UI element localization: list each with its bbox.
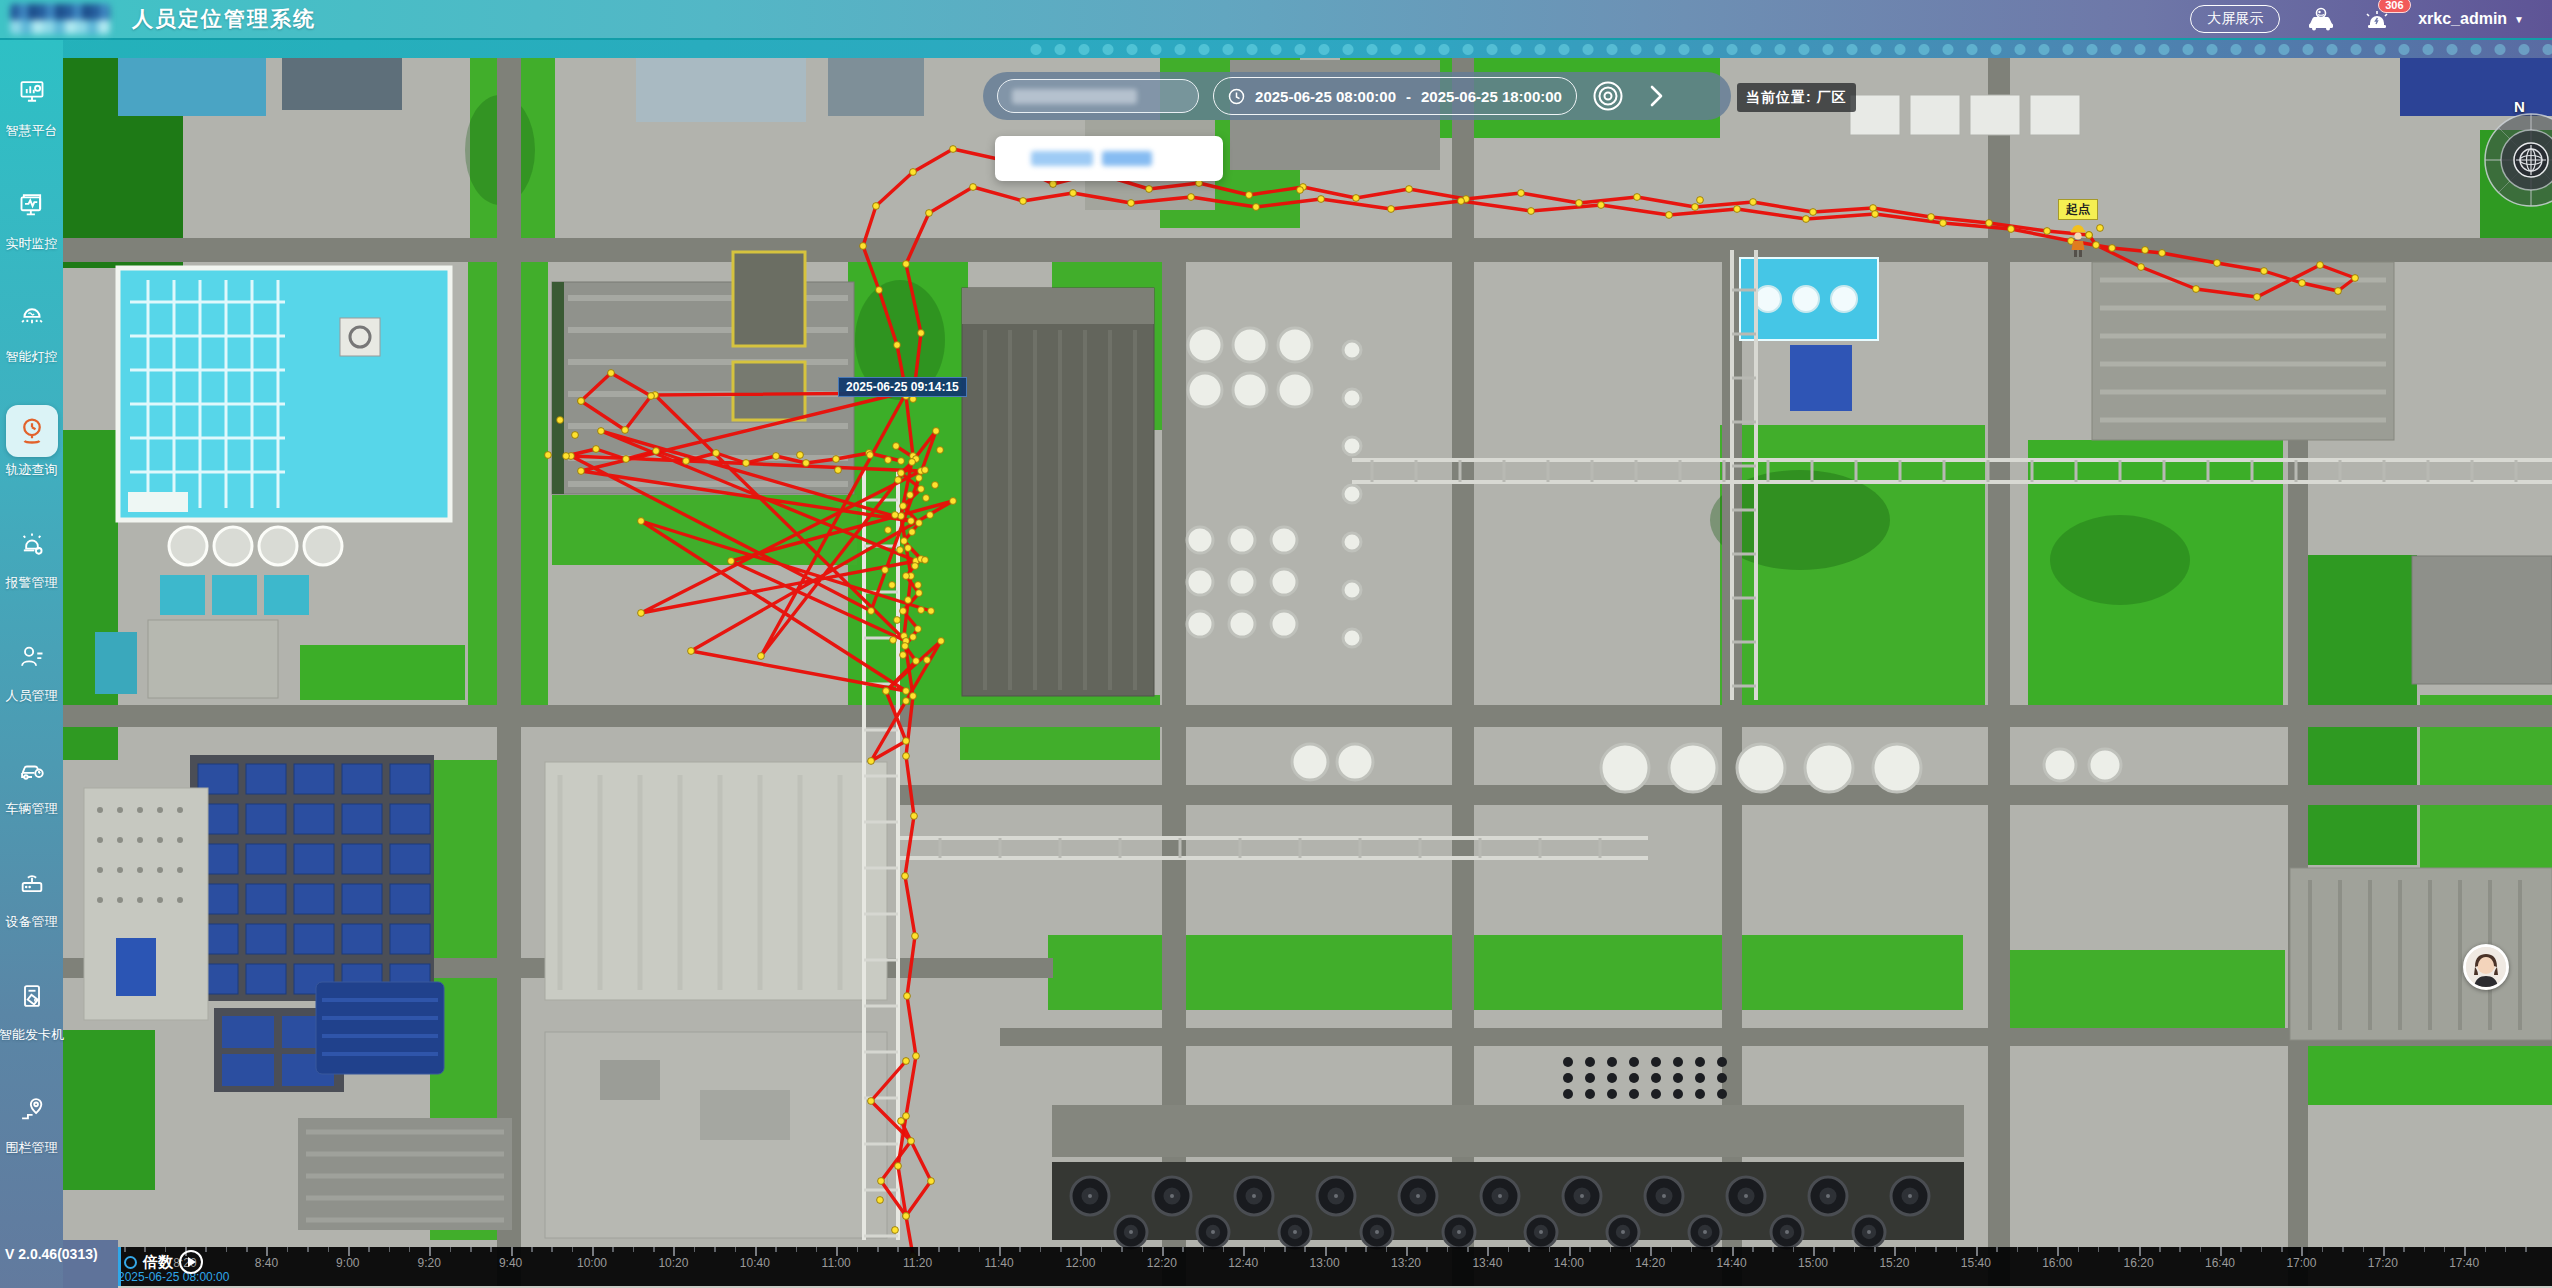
header-accent-strip [0, 40, 2552, 58]
sidebar-item-label: 围栏管理 [6, 1139, 58, 1157]
card-dispenser-icon [6, 970, 58, 1022]
timeline-major-tick [836, 1247, 838, 1256]
timeline-minor-tick [1996, 1247, 1998, 1252]
sidebar-item-label: 智能发卡机 [0, 1026, 64, 1044]
timeline-major-tick [1325, 1247, 1327, 1256]
fence-icon [6, 1083, 58, 1135]
timeline-minor-tick [897, 1247, 899, 1252]
realtime-monitor-icon [6, 179, 58, 231]
speed-label[interactable]: 倍数 [143, 1253, 173, 1272]
timeline-tick-label: 12:40 [1228, 1256, 1258, 1270]
timeline-minor-tick [2118, 1247, 2120, 1252]
track-query-icon [6, 405, 58, 457]
timeline-minor-tick [714, 1247, 716, 1252]
timeline-major-tick [999, 1247, 1001, 1256]
timeline-tick-label: 10:40 [740, 1256, 770, 1270]
timeline-major-tick [1813, 1247, 1815, 1256]
timeline-major-tick [2464, 1247, 2466, 1256]
redacted-suggestion-text [1031, 151, 1093, 166]
notification-icon[interactable]: 306 [2362, 6, 2392, 32]
timeline-minor-tick [1671, 1247, 1673, 1252]
factory-map[interactable] [63, 58, 2552, 1288]
target-icon [1592, 80, 1624, 112]
timeline-tick-label: 10:00 [577, 1256, 607, 1270]
timeline-major-tick [1487, 1247, 1489, 1256]
timeline-minor-tick [1345, 1247, 1347, 1252]
timeline-minor-tick [1508, 1247, 1510, 1252]
timeline-tick-label: 10:20 [658, 1256, 688, 1270]
sidebar-item-3[interactable]: 智能灯控 [0, 292, 63, 405]
timeline-minor-tick [2261, 1247, 2263, 1252]
timeline-minor-tick [1019, 1247, 1021, 1252]
timeline-minor-tick [572, 1247, 574, 1252]
timeline-major-tick [1080, 1247, 1082, 1256]
timeline-minor-tick [1691, 1247, 1693, 1252]
timeline-minor-tick [246, 1247, 248, 1252]
timeline-minor-tick [551, 1247, 553, 1252]
timeline-tick-label: 9:00 [336, 1256, 359, 1270]
timeline-minor-tick [1060, 1247, 1062, 1252]
timeline-minor-tick [1365, 1247, 1367, 1252]
timeline-minor-tick [1528, 1247, 1530, 1252]
timeline-minor-tick [1854, 1247, 1856, 1252]
redacted-search-text [1012, 89, 1137, 104]
timeline-minor-tick [775, 1247, 777, 1252]
sidebar-item-label: 智慧平台 [6, 122, 58, 140]
username: xrkc_admin [2418, 10, 2507, 28]
timeline-major-tick [1732, 1247, 1734, 1256]
timeline-minor-tick [1589, 1247, 1591, 1252]
timeline-minor-tick [1467, 1247, 1469, 1252]
timeline-tick-label: 9:40 [499, 1256, 522, 1270]
date-end[interactable]: 2025-06-25 18:00:00 [1421, 88, 1562, 105]
timeline-minor-tick [2098, 1247, 2100, 1252]
timeline-minor-tick [633, 1247, 635, 1252]
timeline-minor-tick [470, 1247, 472, 1252]
timeline-major-tick [592, 1247, 594, 1256]
timeline-minor-tick [205, 1247, 207, 1252]
user-menu[interactable]: xrkc_admin ▼ [2418, 10, 2524, 28]
timeline-major-tick [429, 1247, 431, 1256]
sidebar-item-9[interactable]: 智能发卡机 [0, 970, 63, 1083]
timeline-minor-tick [1772, 1247, 1774, 1252]
date-range-picker[interactable]: 2025-06-25 08:00:00 - 2025-06-25 18:00:0… [1213, 77, 1577, 115]
timeline-major-tick [2057, 1247, 2059, 1256]
timeline-minor-tick [2424, 1247, 2426, 1252]
timeline-minor-tick [368, 1247, 370, 1252]
locate-button[interactable] [1591, 79, 1625, 113]
sidebar-item-label: 轨迹查询 [6, 461, 58, 479]
timeline-minor-tick [2525, 1247, 2527, 1252]
timeline-minor-tick [2078, 1247, 2080, 1252]
timeline-minor-tick [307, 1247, 309, 1252]
timeline-minor-tick [2485, 1247, 2487, 1252]
worker-marker[interactable] [2066, 222, 2090, 262]
sidebar-item-label: 智能灯控 [6, 348, 58, 366]
timeline-major-tick [2220, 1247, 2222, 1256]
timeline-minor-tick [979, 1247, 981, 1252]
timeline-major-tick [348, 1247, 350, 1256]
timeline-minor-tick [2240, 1247, 2242, 1252]
timeline-minor-tick [409, 1247, 411, 1252]
company-logo [10, 4, 110, 34]
timeline-minor-tick [857, 1247, 859, 1252]
timeline-tick-label: 17:40 [2449, 1256, 2479, 1270]
avatar-face-icon [2466, 947, 2506, 987]
timeline-tick-label: 17:20 [2368, 1256, 2398, 1270]
compass-control[interactable]: N [2484, 92, 2552, 214]
compass-north-label: N [2514, 98, 2525, 115]
worker-icon [2066, 222, 2090, 258]
timeline-major-tick [511, 1247, 513, 1256]
timeline-major-tick [2139, 1247, 2141, 1256]
timeline-minor-tick [1610, 1247, 1612, 1252]
timeline-minor-tick [2017, 1247, 2019, 1252]
track-time-tooltip: 2025-06-25 09:14:15 [838, 377, 967, 397]
timeline-major-tick [1650, 1247, 1652, 1256]
timeline-minor-tick [612, 1247, 614, 1252]
person-icon [6, 631, 58, 683]
track-query-toolbar: 2025-06-25 08:00:00 - 2025-06-25 18:00:0… [983, 72, 1731, 120]
timeline-minor-tick [531, 1247, 533, 1252]
timeline-minor-tick [1101, 1247, 1103, 1252]
timeline-tick-label: 16:00 [2042, 1256, 2072, 1270]
dashboard-monitor-icon [6, 66, 58, 118]
timeline-tick-label: 13:40 [1472, 1256, 1502, 1270]
timeline-major-tick [1406, 1247, 1408, 1256]
sidebar-item-1[interactable]: 智慧平台 [0, 66, 63, 179]
timeline-minor-tick [1142, 1247, 1144, 1252]
timeline-minor-tick [1874, 1247, 1876, 1252]
timeline-minor-tick [287, 1247, 289, 1252]
date-start[interactable]: 2025-06-25 08:00:00 [1255, 88, 1396, 105]
sidebar-item-7[interactable]: 车辆管理 [0, 744, 63, 857]
date-separator: - [1406, 88, 1411, 105]
timeline-major-tick [755, 1247, 757, 1256]
timeline-tick-label: 15:40 [1961, 1256, 1991, 1270]
timeline-minor-tick [2342, 1247, 2344, 1252]
notification-badge: 306 [2378, 0, 2410, 13]
timeline-minor-tick [328, 1247, 330, 1252]
sidebar-item-8[interactable]: 设备管理 [0, 857, 63, 970]
sidebar-item-6[interactable]: 人员管理 [0, 631, 63, 744]
vehicle-monitor-icon[interactable] [2306, 6, 2336, 32]
search-suggestion-item[interactable] [995, 136, 1223, 181]
timeline-minor-tick [1447, 1247, 1449, 1252]
current-location-label: 当前位置: 厂区 [1737, 83, 1856, 112]
timeline-minor-tick [816, 1247, 818, 1252]
timeline-minor-tick [2200, 1247, 2202, 1252]
timeline-major-tick [1243, 1247, 1245, 1256]
sidebar-item-4[interactable]: 轨迹查询 [0, 405, 63, 518]
clock-icon [1228, 88, 1245, 105]
timeline-minor-tick [1182, 1247, 1184, 1252]
timeline-minor-tick [2322, 1247, 2324, 1252]
timeline-tick-label: 13:00 [1310, 1256, 1340, 1270]
timeline-minor-tick [938, 1247, 940, 1252]
timeline-tick-label: 14:00 [1554, 1256, 1584, 1270]
timeline-tick-label: 11:00 [822, 1256, 851, 1270]
timeline-minor-tick [1121, 1247, 1123, 1252]
timeline-tick-label: 15:00 [1798, 1256, 1828, 1270]
timeline-tick-label: 8:40 [255, 1256, 278, 1270]
redacted-suggestion-text [1102, 151, 1152, 166]
timeline-major-tick [673, 1247, 675, 1256]
timeline-minor-tick [694, 1247, 696, 1252]
timeline-minor-tick [1304, 1247, 1306, 1252]
timeline-minor-tick [2179, 1247, 2181, 1252]
timeline-major-tick [266, 1247, 268, 1256]
timeline-tick-label: 14:20 [1635, 1256, 1665, 1270]
timeline-minor-tick [2444, 1247, 2446, 1252]
timeline-minor-tick [1752, 1247, 1754, 1252]
timeline-play-button[interactable] [179, 1250, 203, 1274]
timeline-minor-tick [1284, 1247, 1286, 1252]
timeline-minor-tick [1935, 1247, 1937, 1252]
header-bar: 人员定位管理系统 大屏展示 306 [0, 0, 2552, 40]
speed-indicator-icon[interactable] [124, 1256, 137, 1269]
timeline-minor-tick [450, 1247, 452, 1252]
timeline-minor-tick [1386, 1247, 1388, 1252]
timeline-major-tick [1162, 1247, 1164, 1256]
sidebar-item-label: 车辆管理 [6, 800, 58, 818]
timeline-minor-tick [490, 1247, 492, 1252]
timeline-minor-tick [2281, 1247, 2283, 1252]
timeline-major-tick [2301, 1247, 2303, 1256]
timeline-tick-label: 15:20 [1879, 1256, 1909, 1270]
person-search-input[interactable] [997, 79, 1199, 113]
sidebar-item-label: 实时监控 [6, 235, 58, 253]
version-label: V 2.0.46(0313) [5, 1246, 98, 1262]
timeline-major-tick [1569, 1247, 1571, 1256]
timeline-tick-label: 17:00 [2286, 1256, 2316, 1270]
timeline-major-tick [1976, 1247, 1978, 1256]
timeline-major-tick [2383, 1247, 2385, 1256]
timeline-minor-tick [2403, 1247, 2405, 1252]
timeline-minor-tick [2363, 1247, 2365, 1252]
timeline-minor-tick [1833, 1247, 1835, 1252]
sidebar-item-5[interactable]: 报警管理 [0, 518, 63, 631]
device-icon [6, 857, 58, 909]
timeline-minor-tick [735, 1247, 737, 1252]
timeline-tick-label: 16:40 [2205, 1256, 2235, 1270]
timeline-major-tick [918, 1247, 920, 1256]
sidebar-item-label: 设备管理 [6, 913, 58, 931]
sidebar-item-2[interactable]: 实时监控 [0, 179, 63, 292]
play-icon [188, 1257, 196, 1267]
timeline-minor-tick [1630, 1247, 1632, 1252]
chevron-right-icon [1645, 83, 1667, 109]
sidebar-item-label: 人员管理 [6, 687, 58, 705]
sidebar: 智慧平台实时监控智能灯控轨迹查询报警管理人员管理车辆管理设备管理智能发卡机围栏管… [0, 40, 63, 1288]
timeline-minor-tick [2037, 1247, 2039, 1252]
timeline-minor-tick [877, 1247, 879, 1252]
timeline-minor-tick [1793, 1247, 1795, 1252]
sidebar-item-label: 报警管理 [6, 574, 58, 592]
timeline-minor-tick [796, 1247, 798, 1252]
timeline-minor-tick [1203, 1247, 1205, 1252]
timeline-major-tick [1894, 1247, 1896, 1256]
timeline-minor-tick [1426, 1247, 1428, 1252]
timeline-minor-tick [1711, 1247, 1713, 1252]
timeline-tick-label: 11:40 [984, 1256, 1013, 1270]
timeline-tick-label: 9:20 [418, 1256, 441, 1270]
app-window: 人员定位管理系统 大屏展示 306 [0, 0, 2552, 1288]
timeline-tick-label: 14:40 [1717, 1256, 1747, 1270]
timeline-minor-tick [958, 1247, 960, 1252]
map-canvas [63, 58, 2552, 1288]
vehicle-icon [6, 744, 58, 796]
start-point-label: 起点 [2058, 199, 2098, 220]
timeline-tick-label: 13:20 [1391, 1256, 1421, 1270]
big-screen-button[interactable]: 大屏展示 [2190, 5, 2280, 33]
app-title: 人员定位管理系统 [132, 5, 316, 33]
timeline-minor-tick [1040, 1247, 1042, 1252]
chevron-down-icon: ▼ [2514, 14, 2524, 25]
timeline-minor-tick [1956, 1247, 1958, 1252]
timeline-minor-tick [653, 1247, 655, 1252]
playback-timeline[interactable]: 8:208:409:009:209:4010:0010:2010:4011:00… [118, 1247, 2552, 1288]
timeline-minor-tick [1549, 1247, 1551, 1252]
timeline-minor-tick [1915, 1247, 1917, 1252]
alarm-icon [6, 518, 58, 570]
timeline-tick-label: 16:20 [2124, 1256, 2154, 1270]
timeline-minor-tick [226, 1247, 228, 1252]
smart-light-icon [6, 292, 58, 344]
timeline-minor-tick [2159, 1247, 2161, 1252]
person-avatar-marker[interactable] [2463, 944, 2509, 990]
timeline-minor-tick [1264, 1247, 1266, 1252]
play-query-button[interactable] [1639, 79, 1673, 113]
timeline-tick-label: 12:00 [1065, 1256, 1095, 1270]
timeline-minor-tick [2505, 1247, 2507, 1252]
timeline-minor-tick [389, 1247, 391, 1252]
timeline-tick-label: 11:20 [903, 1256, 932, 1270]
sidebar-item-10[interactable]: 围栏管理 [0, 1083, 63, 1196]
timeline-minor-tick [1223, 1247, 1225, 1252]
timeline-tick-label: 12:20 [1147, 1256, 1177, 1270]
